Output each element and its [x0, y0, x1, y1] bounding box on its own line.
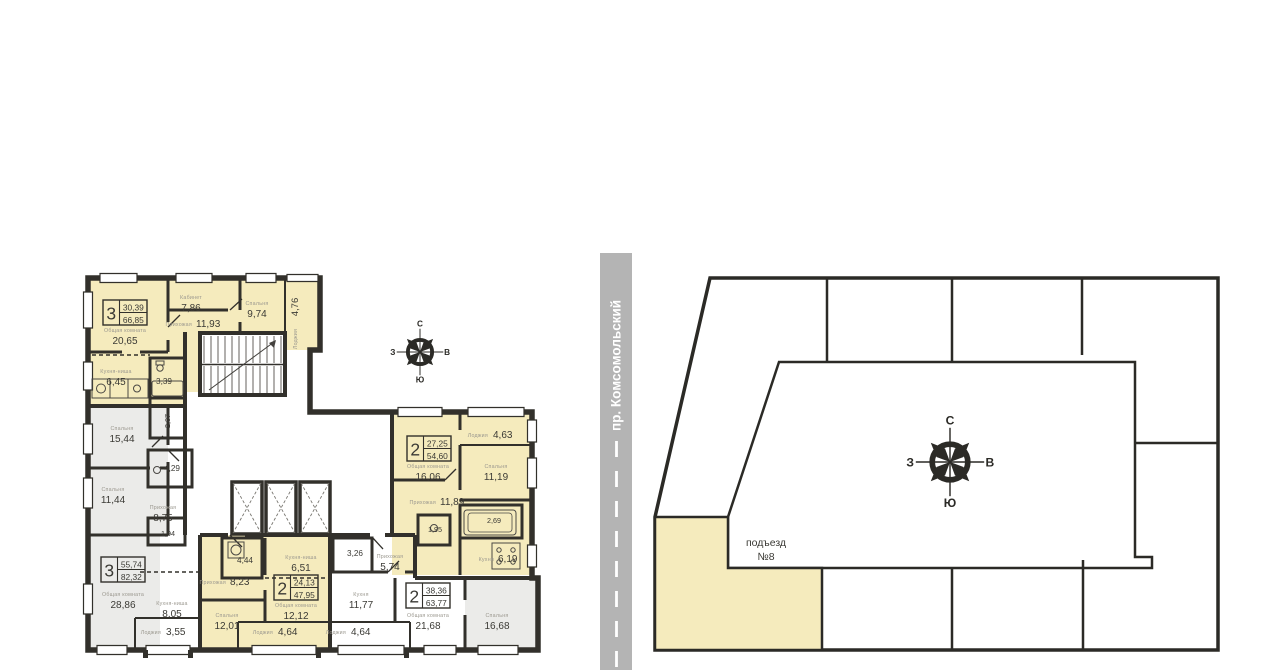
- room-area: 21,68: [415, 621, 440, 632]
- room-name: Кухня-ниша: [100, 369, 132, 375]
- room-name: Спальня: [215, 613, 238, 619]
- room-name: Спальня: [110, 426, 133, 432]
- page: С Ю З В: [0, 0, 1280, 670]
- room-area: 5,74: [380, 562, 400, 573]
- room-name: Прихожая: [409, 500, 436, 506]
- room-name: Общая комната: [102, 592, 144, 598]
- room-name: Лоджия: [468, 433, 488, 439]
- badge-total-area: 63,77: [426, 598, 447, 608]
- room-area: 16,68: [484, 621, 509, 632]
- road-strip: пр. Комсомольский: [600, 253, 632, 670]
- room-name: Прихожая: [165, 322, 192, 328]
- badge-rooms-count: 2: [410, 439, 420, 459]
- room-area: 2,07: [163, 414, 172, 428]
- room-name: Общая комната: [407, 464, 449, 470]
- room-name: Кухня: [479, 557, 494, 563]
- room-area: 8,75: [153, 513, 173, 524]
- room-name: Лоджия: [141, 630, 161, 636]
- room-name: Спальня: [484, 464, 507, 470]
- room-area: 11,19: [484, 472, 509, 483]
- badge-apartment-2k-right: 2 27,25 54,60: [407, 436, 451, 461]
- room-area: 6,19: [498, 554, 518, 565]
- badge-living-area: 30,39: [123, 303, 144, 313]
- room-area: 1,95: [428, 525, 442, 534]
- room-name: Кухня-ниша: [285, 555, 317, 561]
- room-area: 6,51: [291, 563, 311, 574]
- room-area: 11,89: [440, 497, 465, 508]
- room-area: 12,12: [283, 611, 308, 622]
- room-name: Спальня: [101, 487, 124, 493]
- room-name: Общая комната: [407, 613, 449, 619]
- badge-rooms-count: 3: [106, 303, 116, 323]
- room-area: 11,77: [349, 600, 374, 611]
- room-area: 20,65: [112, 336, 137, 347]
- badge-total-area: 66,85: [123, 315, 144, 325]
- badge-apartment-3k-left: 3 55,74 82,32: [101, 557, 145, 582]
- badge-total-area: 47,95: [294, 590, 315, 600]
- room-name: Общая комната: [104, 328, 146, 334]
- badge-apartment-3k-top: 3 30,39 66,85: [103, 300, 147, 325]
- room-area: 15,44: [109, 434, 134, 445]
- room-area: 8,05: [162, 609, 182, 620]
- room-area: 9,74: [247, 309, 267, 320]
- badge-total-area: 82,32: [121, 572, 142, 582]
- room-name: Прихожая: [377, 554, 404, 560]
- courtyard-outline: [728, 362, 1152, 568]
- room-name: Кухня-ниша: [156, 601, 188, 607]
- badge-living-area: 55,74: [121, 560, 142, 570]
- room-area: 12,01: [214, 621, 239, 632]
- plan-canvas: С Ю З В: [0, 0, 1280, 670]
- room-area: 28,86: [110, 600, 135, 611]
- floor-plan-compass: [390, 319, 450, 384]
- elevator-bank: [232, 482, 330, 534]
- room-area: 4,29: [164, 464, 180, 473]
- room-area: 11,44: [101, 495, 126, 506]
- badge-apartment-2k-mid: 2 24,13 47,95: [274, 575, 318, 600]
- room-area: 1,94: [161, 529, 175, 538]
- room-name: Прихожая: [150, 505, 177, 511]
- room-area: 11,93: [196, 319, 221, 330]
- badge-rooms-count: 2: [409, 586, 419, 606]
- room-name: Спальня: [485, 613, 508, 619]
- room-area: 3,39: [156, 377, 172, 386]
- badge-total-area: 54,60: [427, 451, 448, 461]
- entrance-label-line1: подъезд: [746, 537, 786, 549]
- badge-living-area: 27,25: [427, 439, 448, 449]
- room-name: Лоджия: [253, 630, 273, 636]
- room-area: 2,69: [487, 516, 501, 525]
- badge-rooms-count: 3: [104, 560, 114, 580]
- room-name: Прихожая: [199, 580, 226, 586]
- room-name: Спальня: [245, 301, 268, 307]
- badge-living-area: 24,13: [294, 578, 315, 588]
- badge-living-area: 38,36: [426, 586, 447, 596]
- room-area: 4,76: [290, 298, 301, 317]
- room-area: 8,23: [230, 577, 250, 588]
- street-name-label: пр. Комсомольский: [609, 300, 624, 431]
- room-area: 4,63: [493, 430, 513, 441]
- room-area: 16,06: [415, 472, 440, 483]
- room-name: Лоджия: [293, 329, 299, 349]
- room-area: 4,64: [278, 627, 298, 638]
- badge-apartment-2k-bottom: 2 38,36 63,77: [406, 583, 450, 608]
- floor-plan: Общая комната 20,65 Кабинет 7,86 Спальня…: [84, 274, 539, 659]
- room-area: 3,26: [347, 549, 363, 558]
- site-plan: подъезд №8: [655, 278, 1218, 650]
- room-name: Кухня: [353, 592, 368, 598]
- room-name: Лоджия: [326, 630, 346, 636]
- room-name: Общая комната: [275, 603, 317, 609]
- room-area: 4,44: [237, 556, 253, 565]
- room-area: 7,86: [181, 303, 201, 314]
- badge-rooms-count: 2: [277, 578, 287, 598]
- room-area: 3,55: [166, 627, 186, 638]
- room-name: Кабинет: [180, 295, 202, 301]
- entrance-label-line2: №8: [757, 551, 774, 563]
- room-area: 6,45: [106, 377, 126, 388]
- room-area: 4,64: [351, 627, 371, 638]
